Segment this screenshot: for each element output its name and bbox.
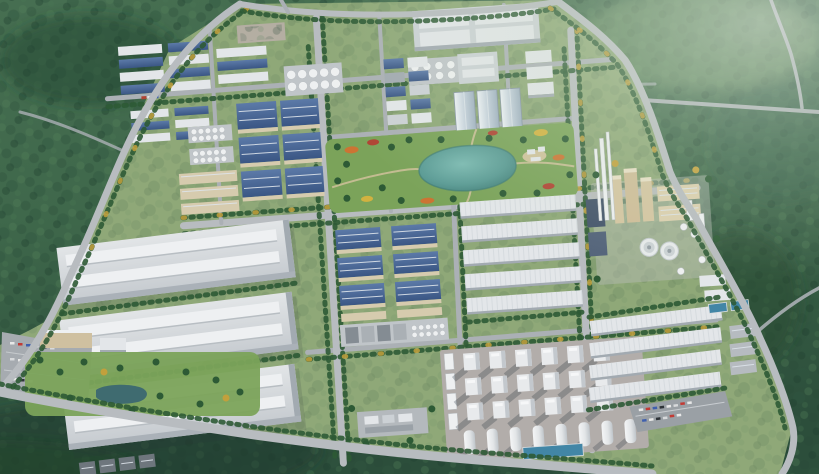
industrial-park-aerial-rendering: Industrial park aerial rendering — [0, 0, 819, 474]
atmospheric-haze — [0, 0, 819, 474]
aerial-scene: Industrial park aerial rendering — [0, 0, 819, 474]
